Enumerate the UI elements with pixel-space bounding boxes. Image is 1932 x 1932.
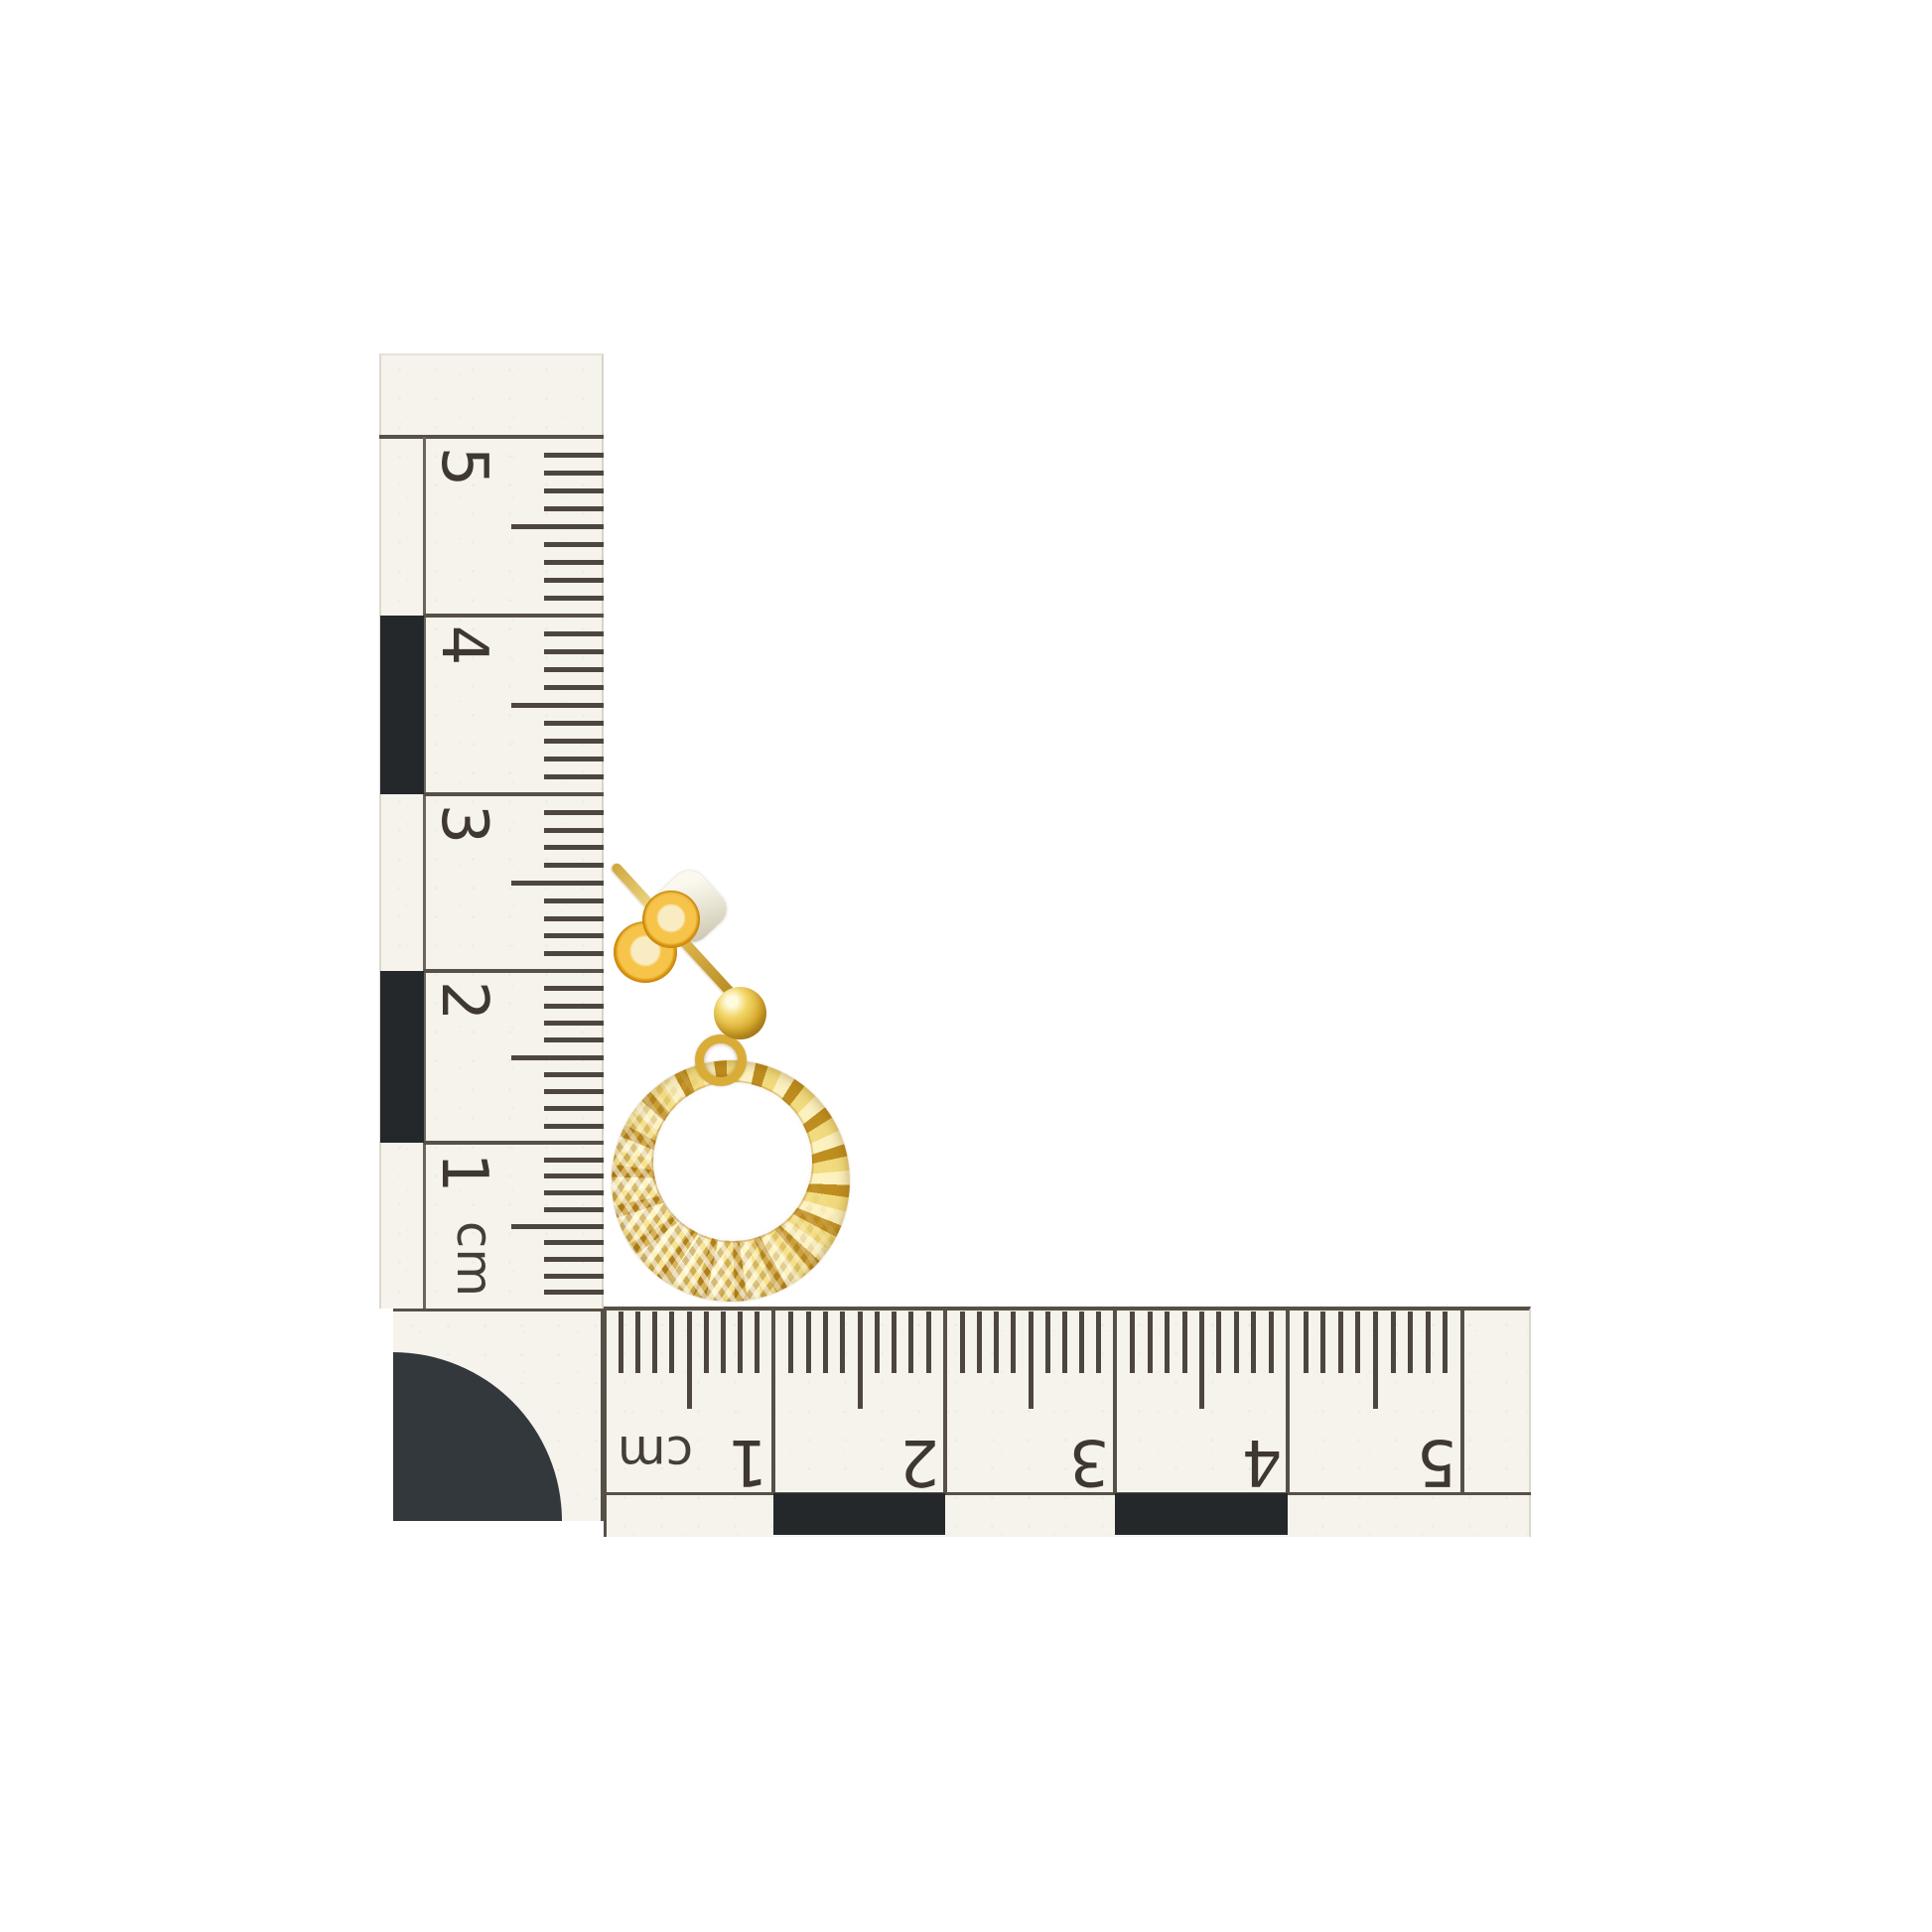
v-ruler-tick: [544, 810, 604, 815]
h-ruler-tick: [1251, 1311, 1256, 1373]
v-ruler-tick: [544, 488, 604, 493]
h-ruler-tick: [1355, 1311, 1360, 1373]
product-photo: cm cm 5432112345: [0, 0, 1932, 1932]
v-ruler-tick: [544, 916, 604, 921]
h-ruler-cm-line: [1113, 1307, 1117, 1492]
v-ruler-tick: [544, 774, 604, 779]
h-ruler-cm-line: [1286, 1307, 1290, 1492]
v-ruler-tick: [544, 828, 604, 833]
h-ruler-tick: [1045, 1311, 1050, 1373]
v-ruler-cm-line: [424, 792, 604, 796]
v-ruler-tick: [511, 524, 604, 529]
v-ruler-tick: [544, 757, 604, 761]
h-ruler-tick: [926, 1311, 931, 1373]
h-ruler-tick: [721, 1311, 726, 1373]
v-ruler-tick: [544, 1037, 604, 1042]
v-ruler-tick: [544, 1173, 604, 1178]
v-ruler-black-block: [380, 616, 424, 794]
h-ruler-tick: [1320, 1311, 1325, 1373]
pendant-center-hole: [653, 1082, 812, 1241]
horizontal-ruler-number: 5: [1417, 1430, 1457, 1493]
h-ruler-tick: [1130, 1311, 1135, 1373]
h-ruler-tick: [738, 1311, 743, 1373]
v-ruler-tick: [544, 898, 604, 903]
h-ruler-tick: [619, 1311, 623, 1373]
v-ruler-tick: [544, 1240, 604, 1245]
h-ruler-tick: [840, 1311, 845, 1373]
vertical-ruler-number: 2: [432, 981, 495, 1022]
v-ruler-tick: [544, 1089, 604, 1094]
v-ruler-tick: [511, 703, 604, 708]
horizontal-ruler-number: 2: [899, 1430, 940, 1493]
v-ruler-tick: [544, 1124, 604, 1129]
h-ruler-tick: [1165, 1311, 1170, 1373]
butterfly-back-loop-right: [642, 891, 700, 948]
h-ruler-tick: [788, 1311, 793, 1373]
horizontal-ruler-unit-label: cm: [618, 1429, 693, 1478]
v-ruler-tick: [544, 1274, 604, 1279]
h-ruler-tick: [1029, 1311, 1034, 1409]
vertical-ruler-number: 5: [432, 447, 495, 487]
h-ruler-tick: [635, 1311, 640, 1373]
h-ruler-tick: [704, 1311, 709, 1373]
vertical-ruler-top-line: [379, 435, 604, 439]
h-ruler-tick: [1096, 1311, 1101, 1373]
vertical-ruler-divider-line: [423, 437, 426, 1309]
h-ruler-tick: [1338, 1311, 1343, 1373]
v-ruler-tick: [544, 1004, 604, 1009]
v-ruler-tick: [544, 1021, 604, 1026]
h-ruler-black-block: [1115, 1493, 1288, 1535]
h-ruler-tick: [669, 1311, 674, 1373]
h-ruler-tick: [1426, 1311, 1431, 1373]
h-ruler-tick: [1011, 1311, 1016, 1373]
vertical-ruler-number: 4: [432, 625, 495, 666]
v-ruler-tick: [544, 667, 604, 672]
v-ruler-tick: [544, 1072, 604, 1077]
v-ruler-tick: [511, 881, 604, 886]
h-ruler-tick: [1373, 1311, 1378, 1409]
h-ruler-cm-line: [1460, 1307, 1464, 1492]
h-ruler-tick: [806, 1311, 811, 1373]
h-ruler-tick: [1062, 1311, 1067, 1373]
h-ruler-cm-line: [771, 1307, 775, 1492]
v-ruler-tick: [511, 1224, 604, 1229]
v-ruler-cm-line: [424, 614, 604, 618]
h-ruler-tick: [994, 1311, 999, 1373]
v-ruler-tick: [544, 933, 604, 938]
gold-bead: [714, 987, 766, 1039]
jump-ring: [695, 1035, 747, 1086]
v-ruler-tick: [544, 721, 604, 726]
v-ruler-tick: [544, 1158, 604, 1163]
v-ruler-tick: [544, 986, 604, 991]
v-ruler-tick: [544, 863, 604, 868]
h-ruler-tick: [892, 1311, 897, 1373]
v-ruler-tick: [544, 1290, 604, 1295]
v-ruler-tick: [544, 471, 604, 476]
vertical-ruler-unit-label: cm: [450, 1221, 499, 1297]
v-ruler-tick: [544, 596, 604, 601]
horizontal-ruler-number: 3: [1069, 1430, 1110, 1493]
h-ruler-cm-line: [943, 1307, 947, 1492]
v-ruler-tick: [544, 845, 604, 850]
v-ruler-tick: [544, 560, 604, 565]
h-ruler-tick: [1216, 1311, 1221, 1373]
h-ruler-tick: [652, 1311, 657, 1373]
v-ruler-black-block: [380, 971, 424, 1143]
v-ruler-tick: [544, 951, 604, 956]
v-ruler-tick: [544, 506, 604, 511]
v-ruler-cm-line: [424, 1141, 604, 1145]
h-ruler-tick: [823, 1311, 828, 1373]
v-ruler-tick: [544, 1190, 604, 1195]
v-ruler-tick: [544, 649, 604, 654]
v-ruler-tick: [511, 1055, 604, 1060]
h-ruler-tick: [1443, 1311, 1448, 1373]
v-ruler-tick: [544, 1257, 604, 1262]
h-ruler-tick: [1304, 1311, 1309, 1373]
h-ruler-tick: [875, 1311, 880, 1373]
h-ruler-tick: [1391, 1311, 1396, 1373]
v-ruler-cm-line: [424, 969, 604, 973]
h-ruler-black-block: [773, 1493, 945, 1535]
v-ruler-tick: [544, 685, 604, 690]
vertical-ruler-number: 3: [432, 804, 495, 845]
h-ruler-tick: [755, 1311, 759, 1373]
v-ruler-tick: [544, 542, 604, 547]
vertical-ruler-number: 1: [432, 1153, 495, 1193]
h-ruler-tick: [1079, 1311, 1084, 1373]
v-ruler-tick: [544, 1207, 604, 1212]
v-ruler-tick: [544, 453, 604, 458]
h-ruler-tick: [1234, 1311, 1239, 1373]
h-ruler-tick: [1408, 1311, 1413, 1373]
h-ruler-tick: [1199, 1311, 1204, 1409]
h-ruler-tick: [687, 1311, 692, 1409]
horizontal-ruler-number: 1: [728, 1430, 768, 1493]
v-ruler-tick: [544, 739, 604, 744]
h-ruler-tick: [1182, 1311, 1187, 1373]
h-ruler-tick: [858, 1311, 863, 1409]
v-ruler-tick: [544, 631, 604, 636]
horizontal-ruler-number: 4: [1242, 1430, 1283, 1493]
h-ruler-tick: [977, 1311, 982, 1373]
h-ruler-tick: [960, 1311, 965, 1373]
h-ruler-tick: [1269, 1311, 1274, 1373]
h-ruler-tick: [908, 1311, 913, 1373]
v-ruler-tick: [544, 578, 604, 583]
h-ruler-tick: [1148, 1311, 1153, 1373]
v-ruler-tick: [544, 1106, 604, 1111]
